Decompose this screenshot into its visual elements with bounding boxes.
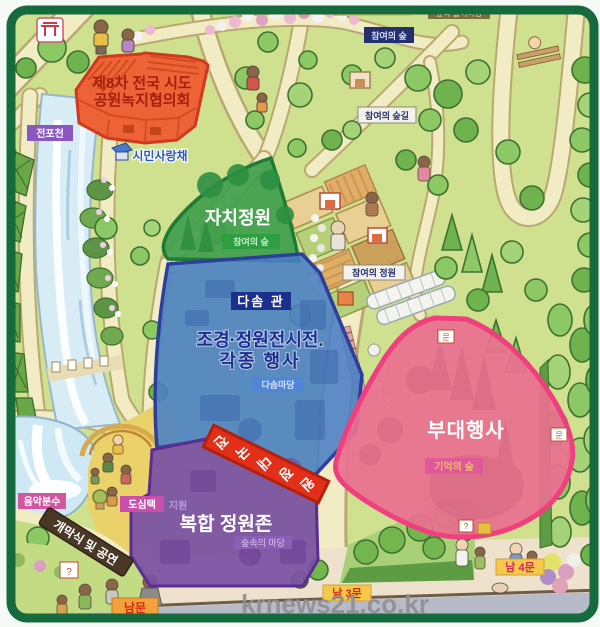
svg-text:문: 문 xyxy=(442,333,449,342)
svg-text:부대행사: 부대행사 xyxy=(427,419,505,442)
svg-text:음악분수: 음악분수 xyxy=(24,496,61,508)
svg-text:남 4문: 남 4문 xyxy=(505,561,534,574)
svg-text:참여의 정원: 참여의 정원 xyxy=(352,267,396,278)
svg-text:참여의 숲길: 참여의 숲길 xyxy=(365,110,409,121)
svg-text:기억의 숲: 기억의 숲 xyxy=(434,460,474,473)
svg-text:?: ? xyxy=(464,522,469,531)
svg-text:복합 정원존: 복합 정원존 xyxy=(180,513,273,535)
svg-text:문: 문 xyxy=(555,431,562,440)
svg-text:도심택: 도심택 xyxy=(128,498,156,511)
svg-text:?: ? xyxy=(66,567,72,578)
svg-text:남문: 남문 xyxy=(124,600,146,615)
svg-text:각종 행사: 각종 행사 xyxy=(219,351,300,371)
svg-text:숲속의 마당: 숲속의 마당 xyxy=(241,538,285,548)
svg-text:다솜 관: 다솜 관 xyxy=(237,294,285,309)
svg-text:조경·정원전시전.: 조경·정원전시전. xyxy=(197,330,324,350)
svg-text:시민사랑채: 시민사랑채 xyxy=(132,148,187,163)
svg-text:다솜마당: 다솜마당 xyxy=(261,379,295,390)
svg-text:지원: 지원 xyxy=(169,499,187,512)
svg-text:참여의 숲: 참여의 숲 xyxy=(233,236,269,247)
svg-text:참여의 숲: 참여의 숲 xyxy=(371,30,407,41)
svg-text:공원녹지협의회: 공원녹지협의회 xyxy=(94,91,191,109)
svg-text:자치정원: 자치정원 xyxy=(205,208,271,228)
svg-text:제8차 전국 시도: 제8차 전국 시도 xyxy=(92,75,192,92)
svg-text:전포천: 전포천 xyxy=(36,127,64,140)
